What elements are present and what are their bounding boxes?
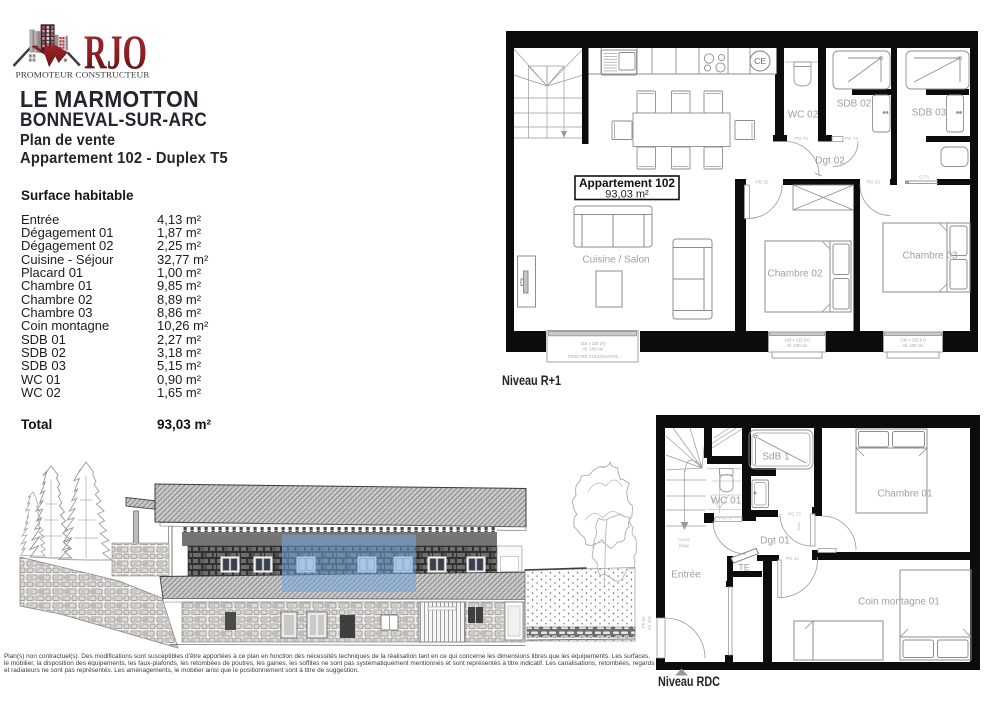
svg-text:SDB 03: SDB 03 [912, 108, 947, 119]
svg-text:All. 100 cm: All. 100 cm [583, 347, 604, 352]
svg-text:140 x 135 (H): 140 x 135 (H) [900, 338, 926, 343]
svg-text:étage: étage [679, 543, 690, 548]
svg-text:PD 65: PD 65 [756, 180, 769, 185]
svg-text:PG 73: PG 73 [845, 136, 858, 141]
svg-text:WC 01: WC 01 [711, 496, 742, 507]
svg-text:Niveau RDC: Niveau RDC [658, 674, 720, 689]
svg-text:Chambre 02: Chambre 02 [767, 269, 822, 280]
svg-text:Chambre 03: Chambre 03 [902, 251, 957, 262]
svg-text:SdB 1: SdB 1 [762, 452, 790, 463]
svg-text:Dgt 02: Dgt 02 [815, 156, 845, 167]
svg-text:Accès: Accès [678, 537, 689, 542]
svg-text:Niveau R+1: Niveau R+1 [502, 373, 561, 388]
svg-text:G 73: G 73 [919, 175, 929, 180]
svg-text:CE: CE [754, 56, 766, 66]
svg-text:PG 73: PG 73 [795, 136, 808, 141]
svg-text:Entrée: Entrée [671, 570, 701, 581]
svg-text:93,03 m²: 93,03 m² [605, 189, 649, 201]
svg-text:Cuisine / Salon: Cuisine / Salon [582, 255, 649, 266]
svg-text:Chambre 01: Chambre 01 [877, 489, 932, 500]
svg-text:RD 23: RD 23 [867, 180, 880, 185]
svg-text:140 x 135 (H): 140 x 135 (H) [784, 338, 810, 343]
svg-text:20x3: 20x3 [796, 522, 801, 531]
svg-text:WC 02: WC 02 [788, 110, 819, 121]
svg-text:FENETRE COULISSANTE: FENETRE COULISSANTE [568, 354, 618, 359]
svg-text:Coin montagne 01: Coin montagne 01 [858, 597, 940, 608]
svg-text:PE 93: PE 93 [641, 616, 646, 628]
svg-text:All. 100 cm: All. 100 cm [903, 343, 924, 348]
svg-text:PG 73: PG 73 [719, 516, 732, 521]
svg-text:SDB 02: SDB 02 [837, 99, 872, 110]
svg-text:PROMOTEUR CONSTRUCTEUR: PROMOTEUR CONSTRUCTEUR [16, 71, 151, 80]
svg-text:PG 44: PG 44 [786, 556, 799, 561]
svg-text:Dgt 01: Dgt 01 [760, 536, 790, 547]
svg-text:All. 205: All. 205 [647, 615, 652, 630]
svg-text:All. 100 cm: All. 100 cm [787, 343, 808, 348]
svg-text:PG 73: PG 73 [788, 512, 801, 517]
svg-text:TE: TE [738, 563, 750, 573]
svg-text:215 x 135 (H): 215 x 135 (H) [580, 341, 606, 346]
